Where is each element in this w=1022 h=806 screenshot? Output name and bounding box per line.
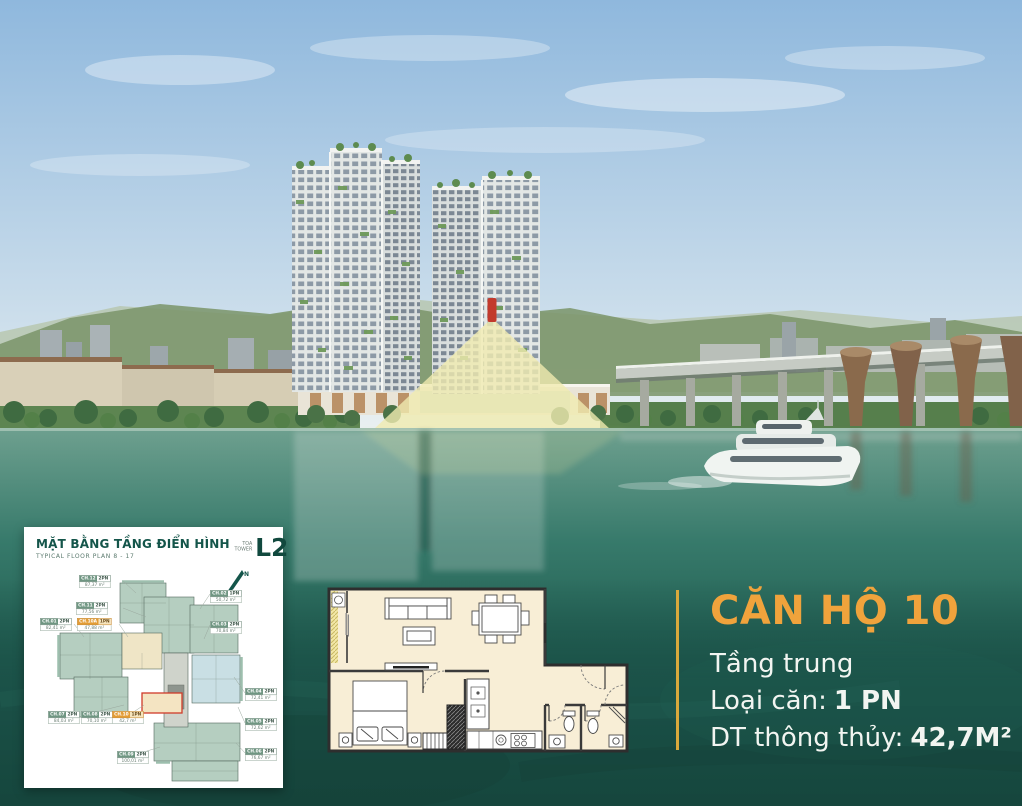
location-pin <box>488 298 497 322</box>
floor-plan-subtitle: TYPICAL FLOOR PLAN 8 - 17 <box>36 553 230 560</box>
unit-chip-highlighted: CH.10A1PN 47,88 m² <box>77 618 112 631</box>
unit-chip: CH.092PN 100,01 m² <box>117 751 148 764</box>
apartment-type-value: 1 PN <box>834 686 902 716</box>
divider-line <box>676 590 679 750</box>
unit-chip-highlighted: CH.101PN 42,7 m² <box>112 711 143 724</box>
poster: MẶT BẰNG TẦNG ĐIỂN HÌNH TYPICAL FLOOR PL… <box>0 0 1022 806</box>
unit-chip: CH.122PN 87,37 m² <box>79 575 110 588</box>
apartment-type-label: Loại căn: <box>710 686 827 716</box>
unit-chip: CH.021PN 50,72 m² <box>210 590 241 603</box>
unit-chip: CH.112PN 77,56 m² <box>76 602 107 615</box>
unit-chip: CH.012PN 82,41 m² <box>40 618 71 631</box>
tower-left <box>292 142 420 392</box>
apartment-area-value: 42,7M² <box>910 723 1011 753</box>
tower-label-en: TOWER <box>234 547 252 553</box>
wardrobe <box>447 705 465 749</box>
apartment-area-label: DT thông thủy: <box>710 723 903 753</box>
tower-code: L2 <box>255 535 288 560</box>
washing-machine <box>332 593 345 607</box>
apartment-area: DT thông thủy:42,7M² <box>710 720 1012 757</box>
north-label: N <box>244 571 249 578</box>
floor-plan-title: MẶT BẰNG TẦNG ĐIỂN HÌNH <box>36 537 230 551</box>
unit-chip: CH.032PN 70,84 m² <box>210 621 241 634</box>
unit-chip: CH.052PN 72,62 m² <box>245 718 276 731</box>
tv <box>393 666 429 669</box>
unit-chip: CH.042PN 72,41 m² <box>245 688 276 701</box>
apartment-info: CĂN HỘ 10 Tầng trung Loại căn:1 PN DT th… <box>710 588 1012 757</box>
apartment-plan <box>327 583 633 755</box>
apartment-type: Loại căn:1 PN <box>710 683 1012 720</box>
unit-chip: CH.072PN 84,03 m² <box>48 711 79 724</box>
apartment-floor: Tầng trung <box>710 646 1012 683</box>
apartment-name: CĂN HỘ 10 <box>710 588 1012 634</box>
floor-plan-card: MẶT BẰNG TẦNG ĐIỂN HÌNH TYPICAL FLOOR PL… <box>24 527 283 788</box>
shoe-cabinet <box>423 733 447 749</box>
unit-chip: CH.082PN 70,10 m² <box>81 711 112 724</box>
highlighted-unit <box>142 693 182 713</box>
unit-chip: CH.062PN 76,67 m² <box>245 748 276 761</box>
